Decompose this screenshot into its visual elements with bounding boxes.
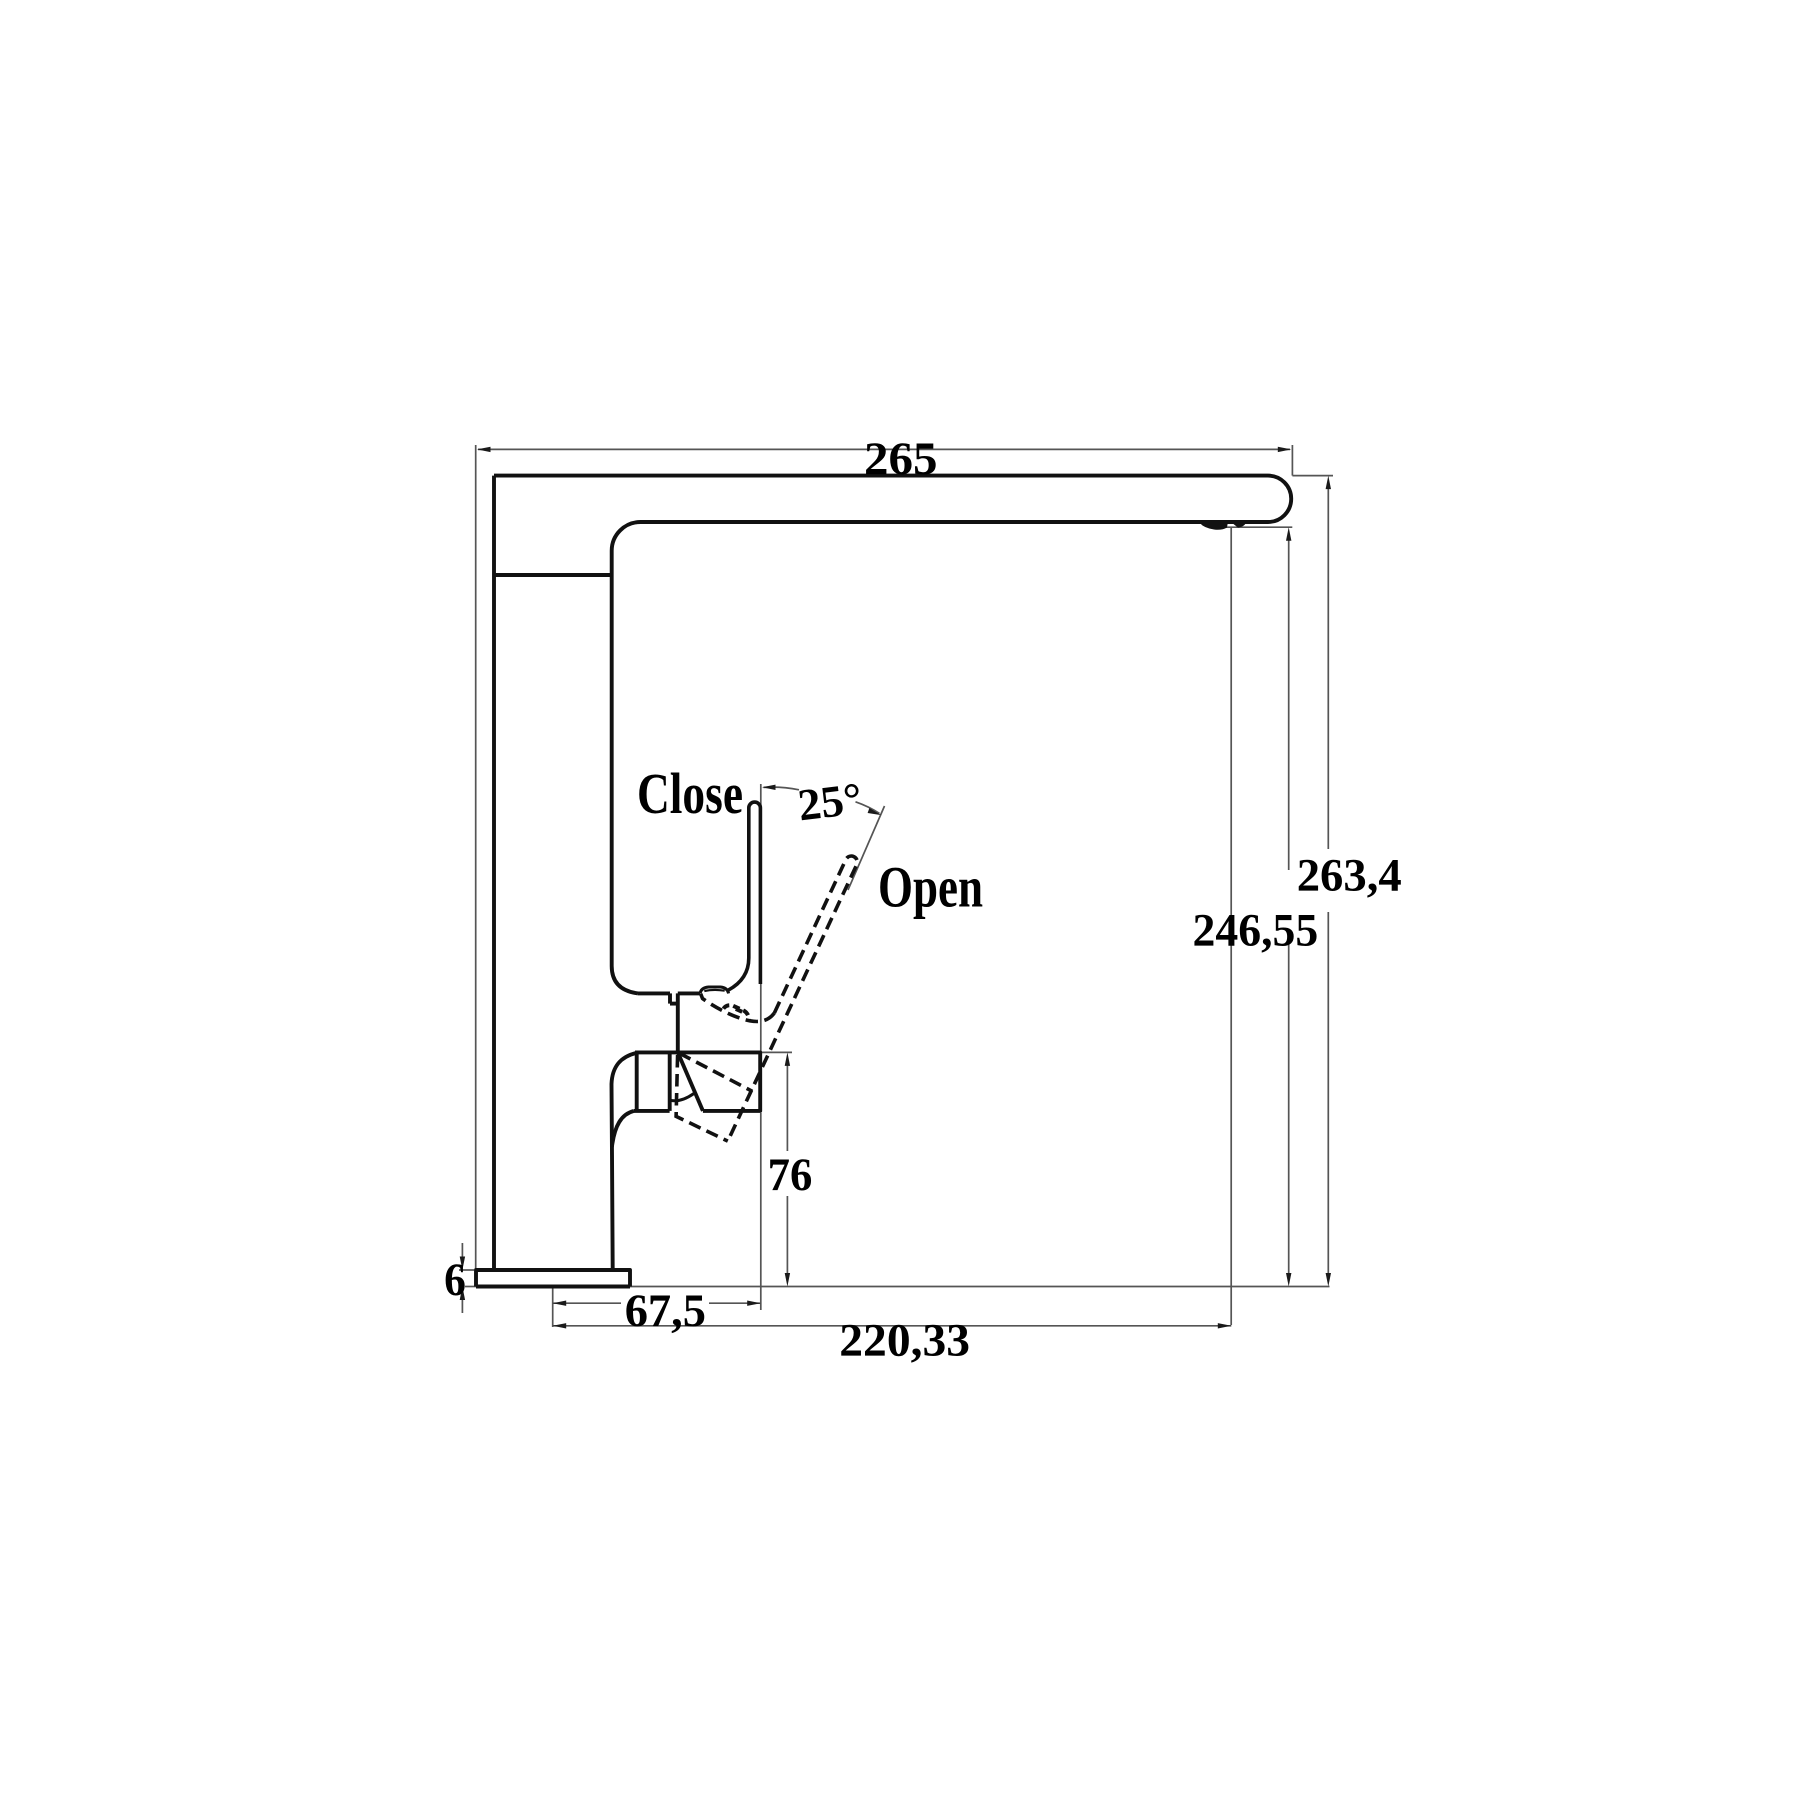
svg-text:246,55: 246,55 [1193, 905, 1319, 957]
svg-text:Close: Close [637, 761, 743, 826]
svg-text:67,5: 67,5 [625, 1285, 706, 1337]
svg-text:6: 6 [444, 1254, 466, 1306]
svg-text:76: 76 [768, 1149, 813, 1201]
svg-text:Open: Open [878, 855, 983, 920]
svg-text:220,33: 220,33 [839, 1315, 970, 1367]
svg-text:263,4: 263,4 [1297, 850, 1402, 902]
svg-text:25°: 25° [795, 773, 865, 830]
svg-text:265: 265 [864, 433, 938, 485]
